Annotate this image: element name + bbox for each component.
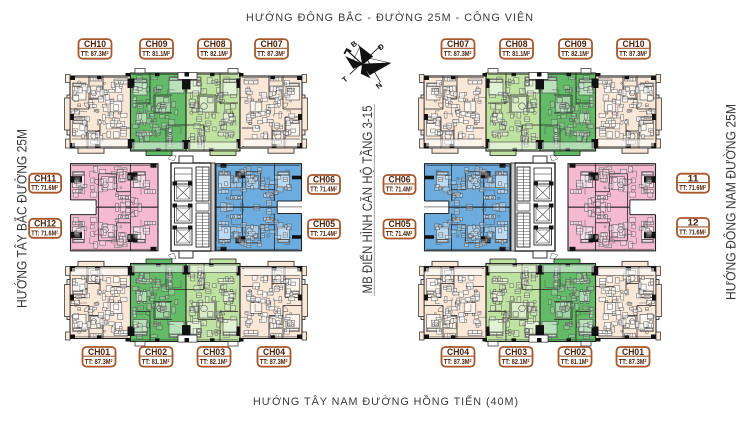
svg-text:CH09: CH09	[146, 39, 168, 49]
svg-text:MB ĐIỂN HÌNH CĂN HỘ TẦNG 3-15: MB ĐIỂN HÌNH CĂN HỘ TẦNG 3-15	[360, 106, 375, 294]
svg-text:TT: 71.6M2: TT: 71.6M2	[31, 229, 58, 237]
svg-text:11: 11	[688, 173, 699, 183]
svg-text:CH02: CH02	[564, 347, 586, 357]
svg-text:TT: 87.3M2: TT: 87.3M2	[619, 358, 647, 366]
svg-text:TT: 82.1M2: TT: 82.1M2	[561, 50, 589, 58]
svg-text:HƯỚNG ĐÔNG BẮC - ĐƯỜNG 25M - C: HƯỚNG ĐÔNG BẮC - ĐƯỜNG 25M - CÔNG VIÊN	[246, 11, 533, 24]
svg-text:TT: 87.3M2: TT: 87.3M2	[260, 358, 288, 366]
svg-text:CH01: CH01	[622, 347, 644, 357]
svg-text:TT: 87.3M2: TT: 87.3M2	[444, 50, 472, 58]
svg-text:TT: 82.1M2: TT: 82.1M2	[200, 50, 228, 58]
svg-text:CH05: CH05	[389, 219, 411, 229]
svg-text:HƯỚNG TÂY NAM ĐƯỜNG HỒNG TIẾN: HƯỚNG TÂY NAM ĐƯỜNG HỒNG TIẾN (40M)	[253, 395, 518, 408]
svg-text:TT: 87.3M2: TT: 87.3M2	[81, 50, 109, 58]
svg-text:CH06: CH06	[313, 175, 335, 185]
svg-text:CH10: CH10	[623, 39, 645, 49]
svg-text:CH04: CH04	[447, 347, 469, 357]
svg-text:HƯỚNG ĐÔNG NAM ĐƯỜNG 25M: HƯỚNG ĐÔNG NAM ĐƯỜNG 25M	[723, 104, 739, 300]
svg-text:TT: 71.6M2: TT: 71.6M2	[31, 184, 58, 192]
svg-text:TT: 71.4M2: TT: 71.4M2	[386, 186, 413, 194]
svg-text:TT: 81.1M2: TT: 81.1M2	[502, 50, 530, 58]
svg-text:CH11: CH11	[34, 173, 56, 183]
svg-text:TT: 82.1M2: TT: 82.1M2	[200, 358, 228, 366]
svg-text:CH09: CH09	[565, 39, 587, 49]
svg-text:TT: 81.1M2: TT: 81.1M2	[142, 358, 170, 366]
svg-text:CH06: CH06	[389, 175, 411, 185]
svg-text:CH07: CH07	[447, 39, 469, 49]
svg-text:CH05: CH05	[313, 219, 335, 229]
svg-text:TT: 81.1M2: TT: 81.1M2	[142, 50, 170, 58]
svg-text:CH08: CH08	[506, 39, 528, 49]
svg-text:TT: 82.1M2: TT: 82.1M2	[502, 358, 530, 366]
svg-text:CH01: CH01	[88, 347, 110, 357]
svg-text:12: 12	[688, 218, 699, 228]
svg-text:TT: 71.4M2: TT: 71.4M2	[386, 230, 413, 238]
svg-text:TT: 71.6M2: TT: 71.6M2	[679, 229, 706, 237]
svg-text:CH02: CH02	[145, 347, 167, 357]
svg-text:CH03: CH03	[505, 347, 527, 357]
svg-text:TT: 71.4M2: TT: 71.4M2	[310, 186, 337, 194]
svg-text:TT: 87.3M2: TT: 87.3M2	[85, 358, 113, 366]
svg-text:CH07: CH07	[261, 39, 283, 49]
svg-text:CH10: CH10	[84, 39, 106, 49]
svg-text:CH03: CH03	[203, 347, 225, 357]
svg-text:HƯỚNG TÂY BẮC ĐƯỜNG 25M: HƯỚNG TÂY BẮC ĐƯỜNG 25M	[13, 129, 30, 308]
svg-text:TT: 81.1M2: TT: 81.1M2	[561, 358, 589, 366]
svg-text:CH08: CH08	[204, 39, 226, 49]
svg-text:TT: 87.3M2: TT: 87.3M2	[619, 50, 647, 58]
svg-text:TT: 71.4M2: TT: 71.4M2	[310, 230, 337, 238]
svg-text:TT: 87.3M2: TT: 87.3M2	[444, 358, 472, 366]
svg-text:CH04: CH04	[263, 347, 285, 357]
svg-text:TT: 87.3M2: TT: 87.3M2	[257, 50, 285, 58]
svg-text:CH12: CH12	[34, 218, 56, 228]
svg-text:TT: 71.6M2: TT: 71.6M2	[679, 184, 706, 192]
